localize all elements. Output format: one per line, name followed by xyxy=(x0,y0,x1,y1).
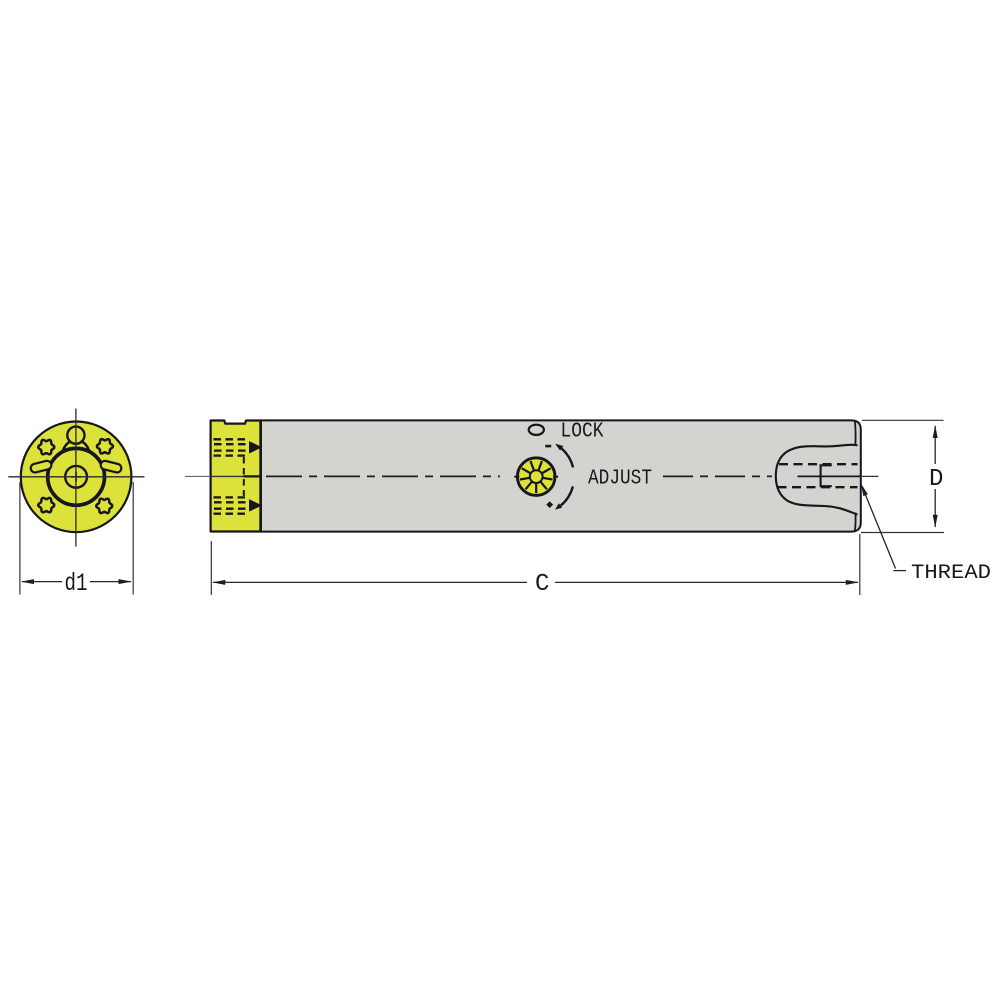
svg-text:D: D xyxy=(929,466,943,493)
svg-text:THREAD: THREAD xyxy=(911,562,991,585)
svg-text:ADJUST: ADJUST xyxy=(588,467,652,490)
svg-text:LOCK: LOCK xyxy=(561,420,604,443)
svg-text:C: C xyxy=(535,571,549,598)
svg-text:d1: d1 xyxy=(65,569,88,598)
